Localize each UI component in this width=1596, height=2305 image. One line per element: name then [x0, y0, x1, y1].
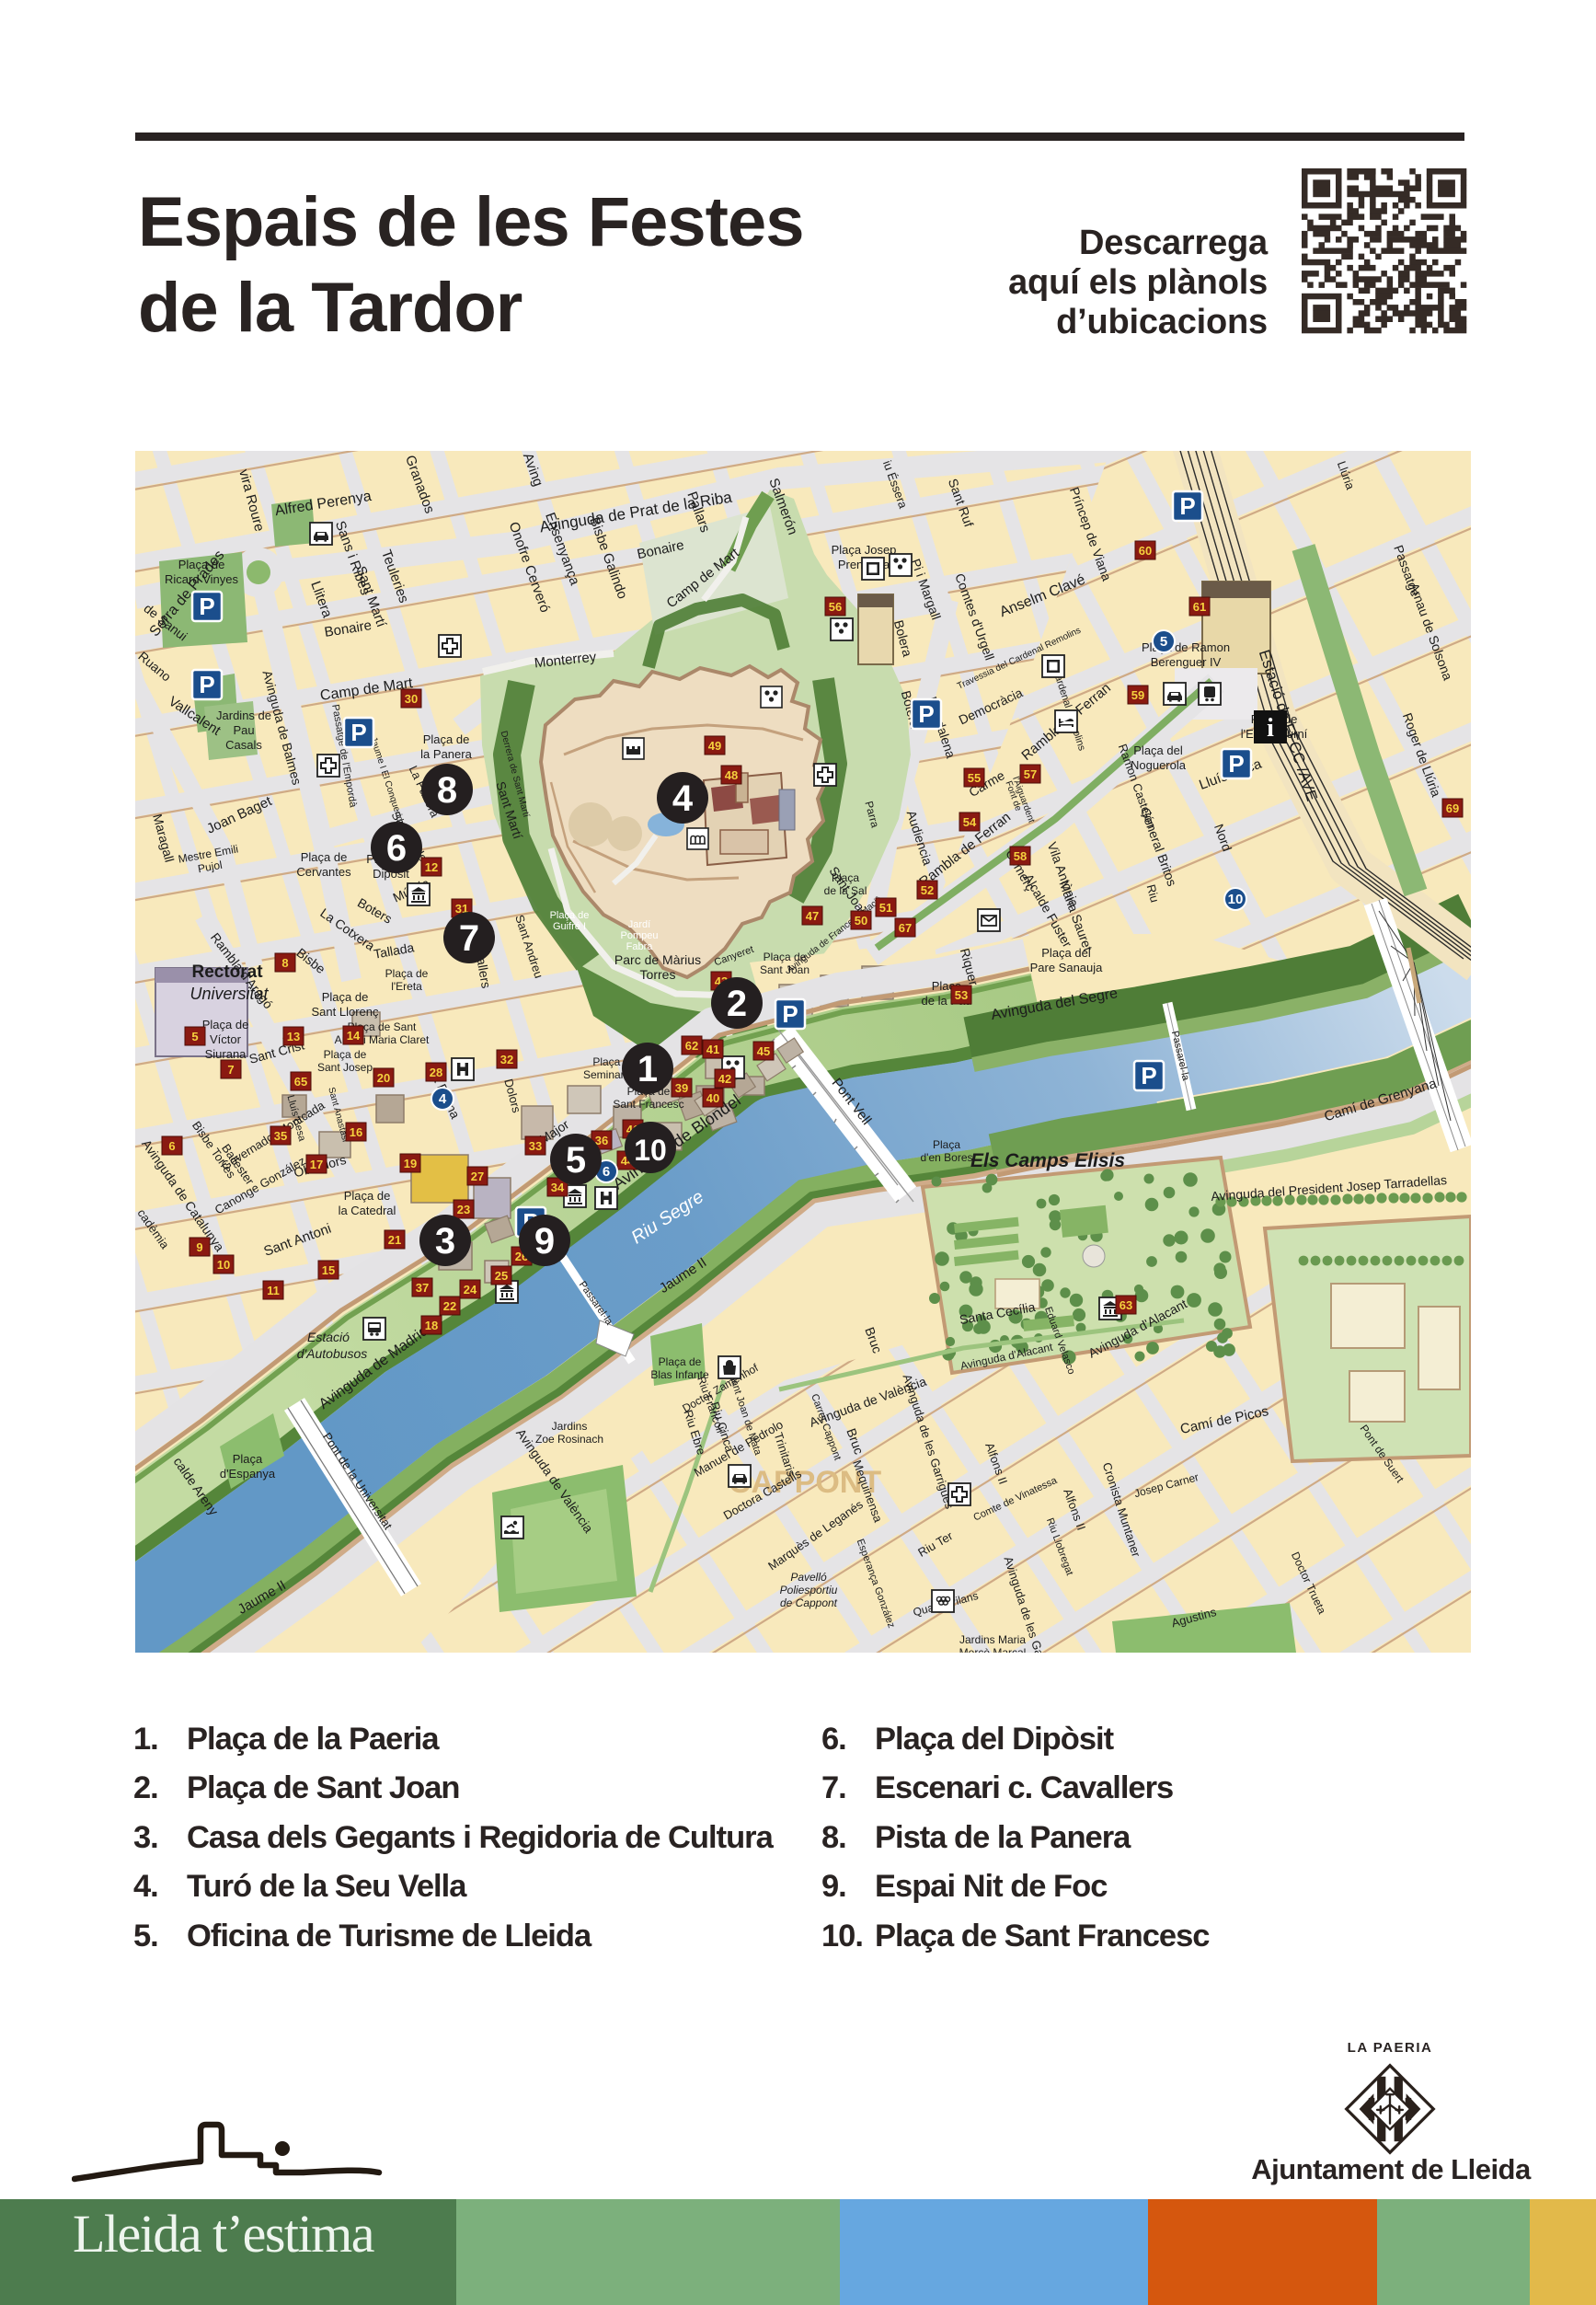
svg-text:55: 55: [968, 771, 981, 785]
svg-text:48: 48: [725, 768, 738, 782]
svg-text:62: 62: [685, 1039, 698, 1053]
svg-text:1: 1: [637, 1049, 658, 1089]
svg-text:Jardí: Jardí: [628, 919, 650, 930]
svg-text:Plaça de: Plaça de: [764, 951, 807, 963]
svg-text:6: 6: [603, 1164, 610, 1180]
svg-text:de Cappont: de Cappont: [780, 1596, 838, 1609]
svg-text:18: 18: [425, 1319, 438, 1332]
svg-text:32: 32: [500, 1053, 513, 1066]
svg-text:22: 22: [443, 1299, 456, 1313]
svg-text:Casals: Casals: [225, 738, 262, 752]
svg-text:12: 12: [425, 860, 438, 874]
svg-text:51: 51: [879, 901, 892, 915]
svg-text:P: P: [918, 700, 934, 728]
svg-text:Mercè Marçal: Mercè Marçal: [959, 1646, 1027, 1653]
svg-text:Plaça: Plaça: [832, 871, 859, 884]
svg-text:4: 4: [672, 778, 694, 819]
svg-text:Blas Infante: Blas Infante: [650, 1368, 709, 1381]
svg-text:d'en Bores: d'en Bores: [921, 1151, 973, 1164]
svg-text:Noguerola: Noguerola: [1131, 758, 1187, 772]
svg-text:13: 13: [287, 1030, 300, 1043]
svg-text:6: 6: [168, 1139, 175, 1153]
svg-text:17: 17: [310, 1158, 323, 1171]
svg-text:Plaça de: Plaça de: [322, 990, 369, 1004]
svg-text:11: 11: [267, 1284, 280, 1297]
svg-text:Plaça de: Plaça de: [344, 1189, 391, 1203]
svg-text:la Panera: la Panera: [420, 747, 472, 761]
svg-text:5: 5: [191, 1030, 198, 1043]
svg-text:P: P: [350, 719, 366, 746]
svg-text:45: 45: [757, 1044, 770, 1058]
svg-text:Plaça de: Plaça de: [202, 1018, 249, 1031]
svg-text:Plaça: Plaça: [233, 1452, 263, 1466]
svg-text:Fabra: Fabra: [626, 941, 654, 952]
svg-text:4: 4: [439, 1091, 447, 1107]
svg-text:6: 6: [386, 828, 407, 869]
svg-text:i: i: [1267, 714, 1274, 743]
svg-text:Plaça de: Plaça de: [423, 732, 470, 746]
svg-text:Torres: Torres: [640, 967, 676, 982]
svg-text:60: 60: [1139, 544, 1152, 558]
svg-text:42: 42: [718, 1072, 731, 1086]
svg-text:28: 28: [430, 1066, 442, 1079]
svg-text:Plaça Josep: Plaça Josep: [832, 543, 897, 557]
svg-text:2: 2: [727, 984, 747, 1024]
svg-text:Guifré I: Guifré I: [553, 921, 586, 932]
svg-text:54: 54: [963, 815, 977, 829]
svg-text:39: 39: [675, 1081, 688, 1095]
svg-text:Zoe Rosinach: Zoe Rosinach: [535, 1433, 603, 1446]
svg-text:34: 34: [551, 1181, 565, 1194]
svg-text:63: 63: [1119, 1298, 1132, 1312]
svg-text:Víctor: Víctor: [210, 1032, 242, 1046]
svg-text:5: 5: [566, 1140, 586, 1181]
svg-text:67: 67: [899, 921, 912, 935]
svg-text:Pau: Pau: [233, 723, 254, 737]
svg-text:24: 24: [464, 1283, 477, 1297]
svg-text:16: 16: [350, 1125, 362, 1139]
svg-text:Els Camps Elisis: Els Camps Elisis: [970, 1150, 1125, 1171]
svg-text:53: 53: [955, 988, 968, 1002]
svg-text:52: 52: [921, 883, 934, 897]
svg-text:10: 10: [217, 1258, 230, 1272]
svg-text:14: 14: [347, 1029, 361, 1043]
svg-text:Plaça de: Plaça de: [659, 1355, 702, 1368]
svg-text:P: P: [199, 593, 214, 620]
svg-text:35: 35: [274, 1129, 287, 1143]
svg-text:50: 50: [855, 914, 867, 928]
svg-text:Berenguer IV: Berenguer IV: [1151, 655, 1222, 669]
svg-text:Plaça de: Plaça de: [324, 1048, 367, 1061]
svg-text:P: P: [782, 1000, 798, 1028]
svg-text:P: P: [1179, 492, 1195, 520]
svg-text:56: 56: [829, 600, 842, 614]
svg-text:8: 8: [437, 770, 457, 811]
svg-text:19: 19: [404, 1157, 417, 1170]
svg-text:Pompeu: Pompeu: [621, 930, 659, 941]
svg-text:49: 49: [708, 739, 721, 753]
svg-text:P: P: [1141, 1062, 1156, 1089]
svg-text:Sant Josep: Sant Josep: [317, 1061, 373, 1074]
svg-text:59: 59: [1131, 688, 1144, 702]
svg-text:de la Sal: de la Sal: [824, 884, 867, 897]
svg-text:41: 41: [706, 1043, 719, 1056]
svg-text:Plaça de: Plaça de: [301, 850, 348, 864]
svg-text:Pavelló: Pavelló: [790, 1571, 827, 1584]
svg-text:Estació: Estació: [307, 1330, 350, 1344]
svg-text:P: P: [199, 671, 214, 698]
svg-text:33: 33: [529, 1139, 542, 1153]
svg-text:Poliesportiu: Poliesportiu: [780, 1584, 838, 1596]
svg-text:5: 5: [1160, 634, 1167, 650]
svg-text:9: 9: [196, 1240, 202, 1254]
svg-text:25: 25: [495, 1269, 508, 1283]
svg-text:Sant Francesc: Sant Francesc: [613, 1098, 683, 1111]
svg-text:Sant Llorenç: Sant Llorenç: [312, 1005, 379, 1019]
svg-text:la Catedral: la Catedral: [339, 1204, 396, 1217]
svg-text:d'Espanya: d'Espanya: [220, 1467, 276, 1481]
svg-text:21: 21: [388, 1233, 401, 1247]
svg-text:27: 27: [471, 1170, 484, 1183]
svg-text:69: 69: [1446, 801, 1459, 815]
svg-text:30: 30: [405, 692, 418, 706]
svg-text:40: 40: [706, 1091, 719, 1105]
svg-text:Siurana: Siurana: [205, 1047, 247, 1061]
svg-text:23: 23: [457, 1203, 470, 1216]
svg-text:58: 58: [1014, 849, 1027, 863]
svg-text:9: 9: [534, 1221, 555, 1262]
svg-text:Plaça de: Plaça de: [385, 967, 429, 980]
svg-text:7: 7: [227, 1063, 234, 1077]
svg-text:Cervantes: Cervantes: [296, 865, 351, 879]
svg-text:Plaça del: Plaça del: [1133, 743, 1183, 757]
svg-text:Ricard Vinyes: Ricard Vinyes: [165, 572, 238, 586]
svg-text:10: 10: [634, 1134, 667, 1167]
svg-text:Sant Joan: Sant Joan: [760, 963, 809, 976]
svg-text:Jardins de: Jardins de: [216, 709, 271, 722]
svg-text:15: 15: [322, 1263, 335, 1277]
svg-text:Jardins: Jardins: [552, 1420, 588, 1433]
svg-text:37: 37: [416, 1281, 429, 1295]
svg-text:47: 47: [806, 909, 819, 923]
svg-text:8: 8: [281, 956, 288, 970]
svg-text:10: 10: [1228, 892, 1244, 907]
svg-text:57: 57: [1024, 767, 1037, 781]
svg-text:Jardins Maria: Jardins Maria: [959, 1633, 1026, 1646]
svg-text:Pare Sanauja: Pare Sanauja: [1030, 961, 1104, 974]
svg-text:7: 7: [459, 918, 479, 959]
svg-text:Plaça de: Plaça de: [550, 910, 590, 921]
svg-text:20: 20: [377, 1071, 390, 1085]
svg-text:Plaça del: Plaça del: [1041, 946, 1091, 960]
svg-text:Plaça de: Plaça de: [178, 558, 225, 571]
svg-text:61: 61: [1193, 600, 1206, 614]
svg-text:l'Ereta: l'Ereta: [391, 980, 422, 993]
svg-text:65: 65: [294, 1075, 307, 1089]
svg-text:d'Autobusos: d'Autobusos: [297, 1346, 368, 1361]
svg-text:Parc de Màrius: Parc de Màrius: [614, 952, 701, 967]
svg-text:3: 3: [435, 1221, 455, 1262]
svg-text:P: P: [1228, 750, 1244, 778]
svg-text:Plaça: Plaça: [933, 1138, 960, 1151]
